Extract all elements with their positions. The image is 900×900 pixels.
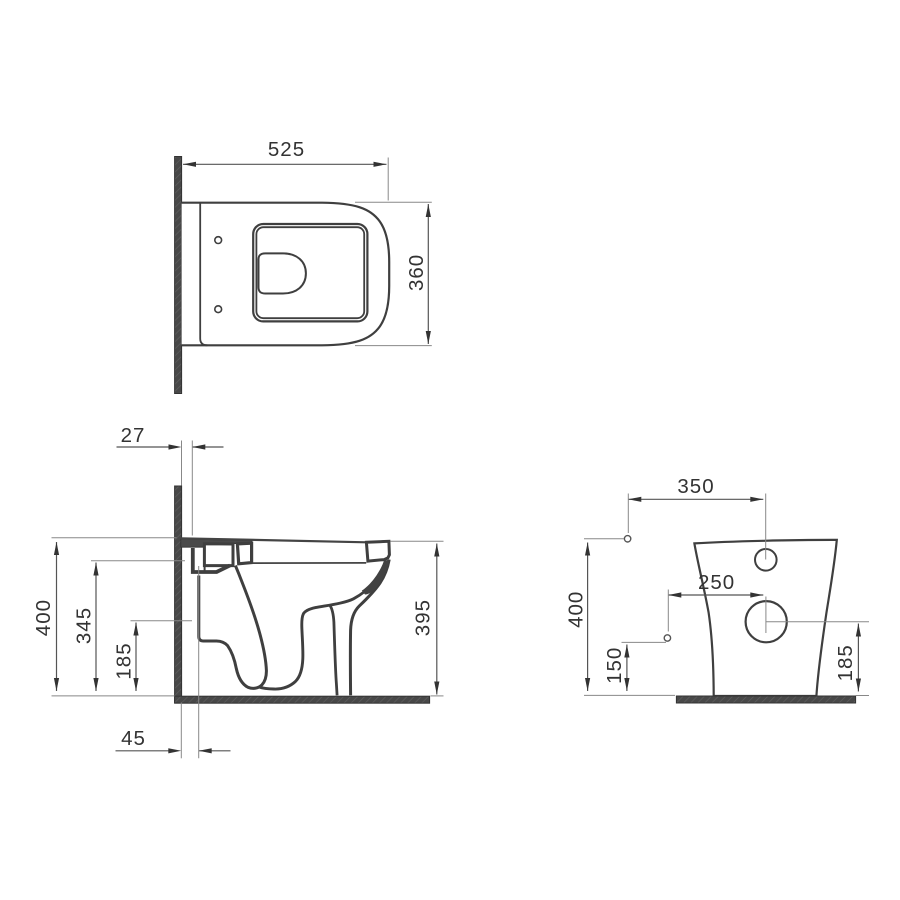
- svg-text:400: 400: [32, 599, 55, 636]
- svg-text:400: 400: [564, 591, 587, 628]
- svg-text:27: 27: [121, 424, 146, 447]
- svg-text:360: 360: [405, 254, 428, 291]
- svg-text:395: 395: [411, 599, 434, 636]
- svg-text:345: 345: [73, 607, 96, 644]
- svg-text:185: 185: [834, 644, 857, 681]
- svg-text:150: 150: [603, 647, 626, 684]
- svg-text:250: 250: [698, 571, 735, 594]
- svg-text:185: 185: [113, 642, 136, 679]
- svg-text:525: 525: [268, 138, 305, 161]
- svg-text:350: 350: [677, 475, 714, 498]
- svg-text:45: 45: [121, 727, 146, 750]
